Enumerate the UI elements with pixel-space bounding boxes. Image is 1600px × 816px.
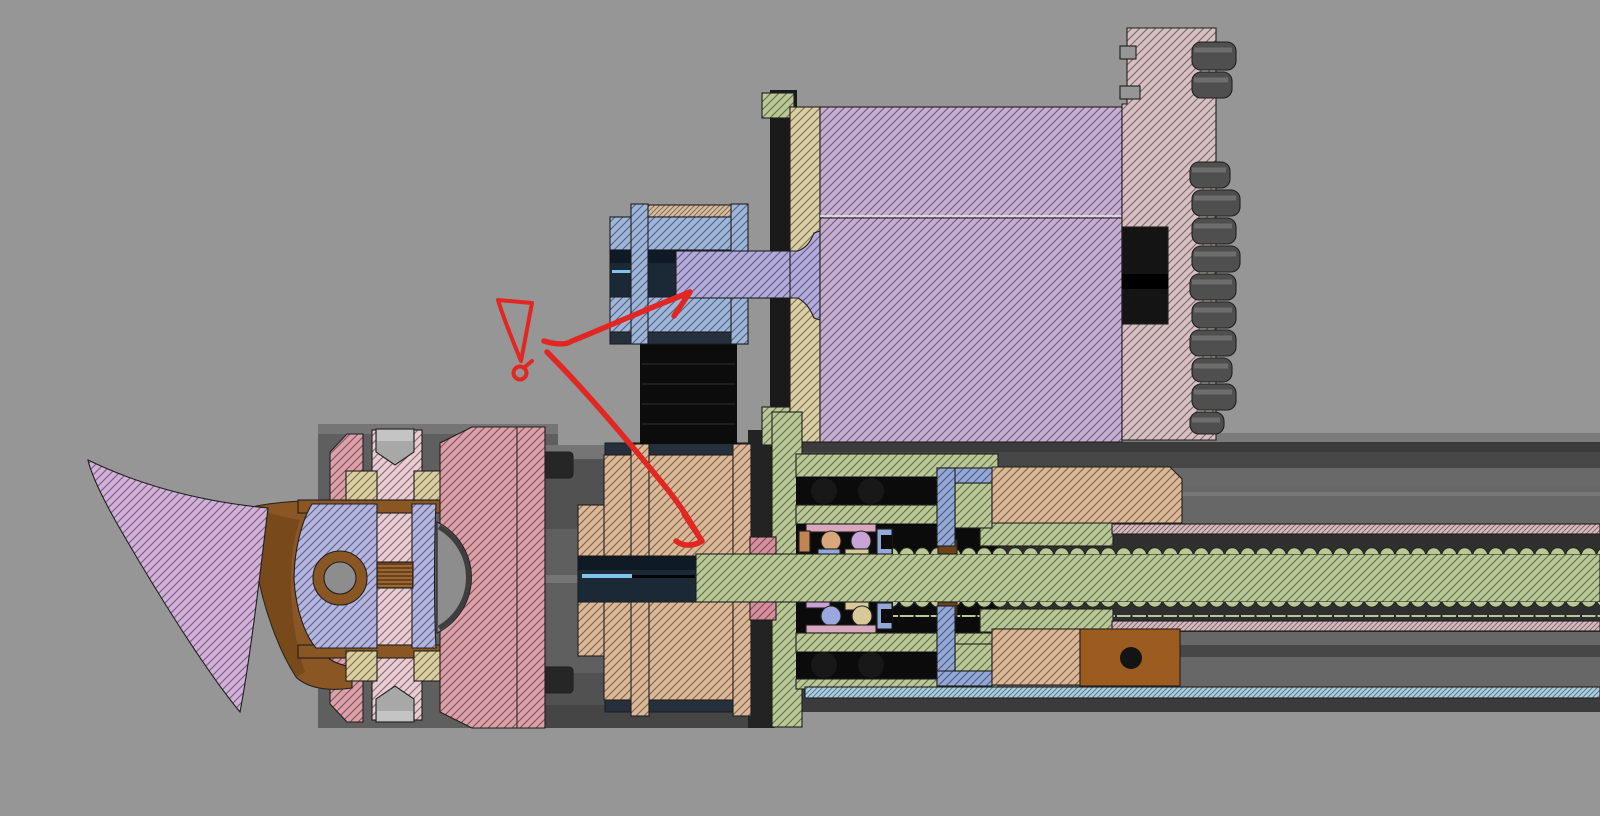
- bearing-ball-small[interactable]: [852, 606, 872, 626]
- cad-viewport: [0, 0, 1600, 816]
- bearing-ball-small[interactable]: [821, 531, 841, 551]
- bearing-retainer-bottom[interactable]: [806, 625, 876, 633]
- rail-bottom-edge: [774, 699, 1600, 712]
- clevis-link-right[interactable]: [412, 504, 436, 648]
- flange-notch-2: [1120, 86, 1140, 99]
- spline-tooth: [1192, 42, 1236, 70]
- flange-notch-1: [1120, 46, 1136, 59]
- nut-top-facet: [377, 430, 413, 441]
- washer-top-left[interactable]: [346, 471, 377, 500]
- spline-tooth: [1192, 302, 1236, 328]
- pulley-bottom-surface: [605, 699, 751, 712]
- motor-shaft[interactable]: [676, 251, 792, 298]
- bearing-ball-small[interactable]: [851, 531, 871, 551]
- washer-top-right[interactable]: [414, 471, 443, 500]
- nut-carrier-top-block[interactable]: [992, 467, 1182, 523]
- clamp-bolt-top[interactable]: [541, 452, 573, 478]
- bearing-ball-large[interactable]: [858, 652, 884, 678]
- bearing-ball-small[interactable]: [821, 606, 841, 626]
- motor-rear-shaft-gap: [1122, 274, 1168, 289]
- bearing-ball-large[interactable]: [811, 652, 837, 678]
- nut-liner-top[interactable]: [1112, 524, 1600, 534]
- motor-pulley-flange-left[interactable]: [631, 204, 648, 344]
- section-view-canvas: [0, 0, 1600, 816]
- timing-belt[interactable]: [640, 344, 737, 444]
- washer-bottom-left[interactable]: [346, 651, 377, 681]
- clamp-bolt-bottom[interactable]: [541, 667, 573, 693]
- washer-bottom-right[interactable]: [414, 651, 443, 681]
- pivot-pin[interactable]: [324, 562, 356, 594]
- motor-pulley-upper[interactable]: [610, 217, 732, 250]
- spline-tooth: [1190, 330, 1236, 356]
- bearing-clip-notch-top: [881, 535, 892, 549]
- bearing-retainer-top[interactable]: [806, 524, 876, 532]
- spline-tooth: [1192, 246, 1240, 272]
- spline-tooth: [1192, 358, 1232, 382]
- spline-tooth: [1190, 412, 1224, 434]
- spline-tooth: [1192, 190, 1240, 216]
- nut-bottom-facet: [377, 711, 413, 721]
- bearing-ball-large[interactable]: [858, 478, 884, 504]
- pulley-bore-highlight: [582, 574, 632, 578]
- belt-over-pulley[interactable]: [648, 205, 732, 217]
- bearing-clip-notch-bottom: [881, 609, 892, 623]
- nut-flange-green-top[interactable]: [955, 483, 992, 528]
- pulley-top-surface: [605, 443, 751, 456]
- preload-shim-top[interactable]: [750, 537, 776, 556]
- spline-tooth: [1192, 72, 1232, 98]
- spline-tooth: [1190, 162, 1230, 188]
- rail-top-shadow: [774, 442, 1600, 452]
- nut-flange-green-bottom[interactable]: [955, 644, 992, 671]
- motor-body[interactable]: [820, 107, 1122, 442]
- gearbox-plate-top-tab[interactable]: [762, 93, 794, 118]
- lead-screw-shaft[interactable]: [696, 554, 1600, 602]
- nut-bracket-bottom-arm[interactable]: [937, 671, 992, 686]
- nut-bracket-top-leg[interactable]: [937, 468, 955, 546]
- adjuster-spring[interactable]: [377, 562, 413, 588]
- nut-carrier-bottom-block[interactable]: [992, 629, 1080, 685]
- bearing-ball-large[interactable]: [811, 478, 837, 504]
- spline-tooth: [1192, 384, 1236, 410]
- nut-liner-bottom[interactable]: [1112, 621, 1600, 631]
- linear-rail-strip[interactable]: [805, 687, 1600, 698]
- bearing-clip-copper-top[interactable]: [799, 531, 810, 552]
- spline-tooth: [1192, 218, 1236, 244]
- belt-run: [640, 344, 737, 444]
- spline-tooth: [1190, 274, 1236, 300]
- drive-nut-top[interactable]: [980, 523, 1113, 546]
- preload-shim-bottom[interactable]: [750, 601, 776, 620]
- carrier-block-hole: [1120, 647, 1142, 669]
- pulley-bore-gap: [632, 575, 695, 578]
- pulley-bore-top-shade: [578, 556, 696, 570]
